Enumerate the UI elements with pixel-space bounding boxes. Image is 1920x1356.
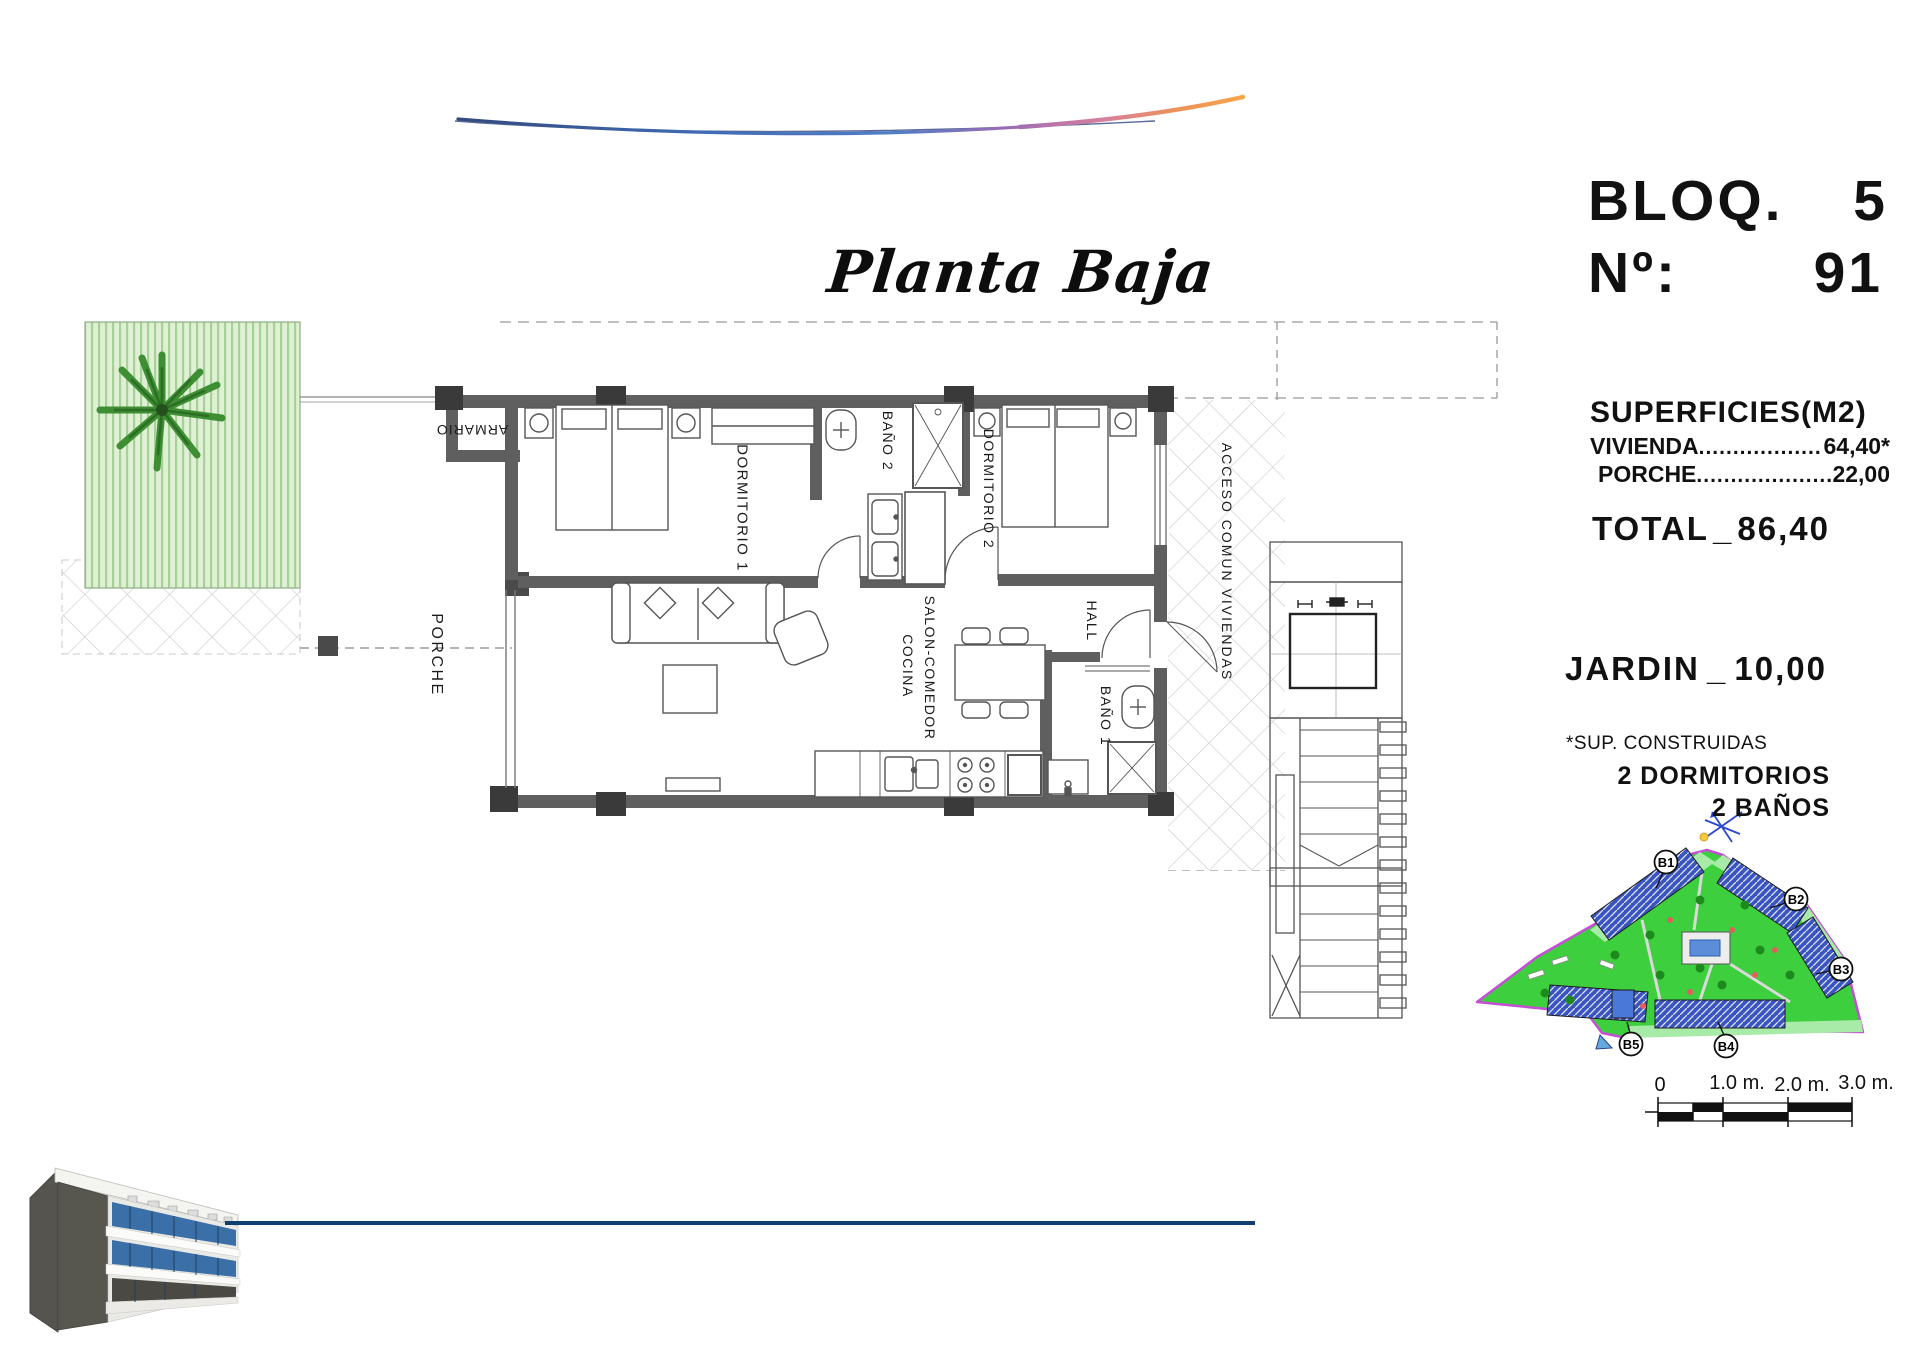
header-swoosh — [455, 97, 1243, 134]
site-marker-triangle — [1596, 1035, 1612, 1049]
block-number: 5 — [1853, 168, 1888, 234]
feature-list: 2 DORMITORIOS 2 BAÑOS — [1558, 760, 1830, 824]
feature-bedrooms: 2 DORMITORIOS — [1558, 760, 1830, 792]
porch-pillar — [318, 636, 338, 656]
room-label-porche: PORCHE — [427, 613, 445, 696]
site-pool-building — [1612, 990, 1634, 1018]
surface-label: VIVIENDA — [1590, 433, 1699, 460]
site-label-b3: B3 — [1833, 962, 1850, 977]
nightstand — [672, 408, 700, 438]
room-label-armario: ARMARIO — [436, 422, 508, 438]
block-title-row: BLOQ. 5 — [1588, 168, 1888, 234]
total-label: TOTAL — [1592, 510, 1709, 548]
total-separator: _ — [1713, 510, 1733, 548]
total-row: TOTAL _ 86,40 — [1592, 510, 1830, 548]
jardin-separator: _ — [1707, 650, 1727, 688]
site-plan-map: B1 B2 B3 B4 B5 — [1477, 812, 1863, 1058]
nightstand — [1110, 408, 1136, 436]
page-title: Planta Baja — [824, 238, 1217, 306]
feature-bathrooms: 2 BAÑOS — [1558, 792, 1830, 824]
surface-value: 64,40* — [1823, 433, 1890, 460]
surfaces-heading: SUPERFICIES(M2) — [1590, 396, 1867, 430]
footer-line — [225, 1221, 1255, 1225]
walkway-label-acceso: ACCESO COMUN VIVIENDAS — [1219, 443, 1235, 681]
surface-value: 22,00 — [1832, 461, 1890, 488]
brochure-sheet: { "header": { "script_title": "Planta Ba… — [0, 0, 1920, 1356]
scale-tick-0: 0 — [1654, 1074, 1665, 1097]
scale-tick-1m: 1.0 m. — [1709, 1072, 1765, 1095]
surface-row-vivienda: VIVIENDA ...............................… — [1590, 433, 1890, 460]
site-label-b5: B5 — [1623, 1037, 1640, 1052]
nightstand — [525, 408, 553, 438]
unit-number: 91 — [1814, 240, 1883, 306]
scale-bar — [1645, 1097, 1852, 1127]
total-value: 86,40 — [1737, 510, 1830, 548]
furniture — [525, 403, 1156, 797]
fridge — [1008, 755, 1041, 795]
room-label-salon-comedor: SALON-COMEDOR — [922, 596, 938, 741]
room-label-bano1: BAÑO 1 — [1098, 686, 1114, 746]
surface-label: PORCHE — [1598, 461, 1696, 488]
pool-water — [1690, 940, 1720, 956]
garden-lawn — [85, 322, 300, 588]
unit-number-row: Nº: 91 — [1588, 240, 1883, 306]
block-word: BLOQ. — [1588, 168, 1784, 234]
site-label-b4: B4 — [1718, 1039, 1735, 1054]
dotted-leader: ........................................ — [1699, 436, 1824, 460]
room-label-bano2: BAÑO 2 — [880, 411, 896, 471]
stairwell-block — [1270, 542, 1406, 1018]
chair — [962, 628, 990, 644]
elevator-car — [1290, 614, 1376, 688]
scale-tick-2m: 2.0 m. — [1774, 1074, 1830, 1097]
jardin-value: 10,00 — [1734, 650, 1827, 688]
chair — [962, 702, 990, 718]
unit-label: Nº: — [1588, 240, 1678, 306]
chair — [1000, 702, 1028, 718]
site-label-b1: B1 — [1658, 855, 1675, 870]
kitchen-sink — [885, 757, 913, 791]
room-label-dormitorio2: DORMITORIO 2 — [981, 429, 997, 549]
room-label-hall: HALL — [1084, 600, 1100, 641]
chair — [1000, 628, 1028, 644]
room-label-cocina: COCINA — [900, 634, 916, 697]
dotted-leader: ........................................ — [1696, 464, 1832, 488]
surface-row-porche: PORCHE .................................… — [1598, 461, 1890, 488]
scale-tick-3m: 3.0 m. — [1838, 1072, 1894, 1095]
jardin-label: JARDIN — [1565, 650, 1700, 688]
coffee-table — [663, 665, 717, 713]
site-label-b2: B2 — [1788, 892, 1805, 907]
footnote: *SUP. CONSTRUIDAS — [1566, 733, 1767, 755]
dining-table — [955, 645, 1045, 700]
room-label-dormitorio1: DORMITORIO 1 — [734, 444, 751, 572]
duct-column — [905, 492, 945, 584]
jardin-row: JARDIN _ 10,00 — [1565, 650, 1827, 688]
building-render — [30, 1168, 240, 1332]
tv-unit — [666, 778, 720, 791]
garden — [62, 322, 300, 654]
